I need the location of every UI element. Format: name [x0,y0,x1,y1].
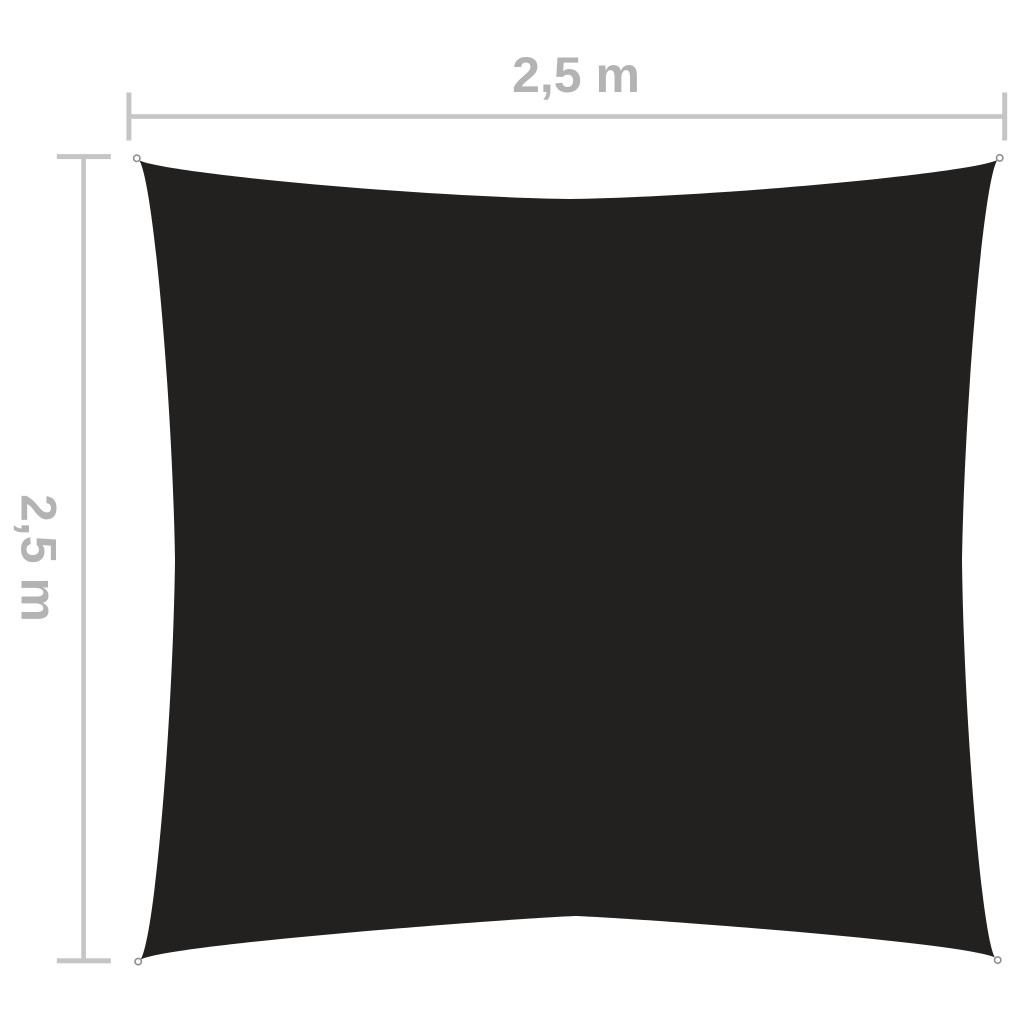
svg-text:2,5 m: 2,5 m [512,47,640,103]
svg-text:2,5 m: 2,5 m [10,494,66,622]
